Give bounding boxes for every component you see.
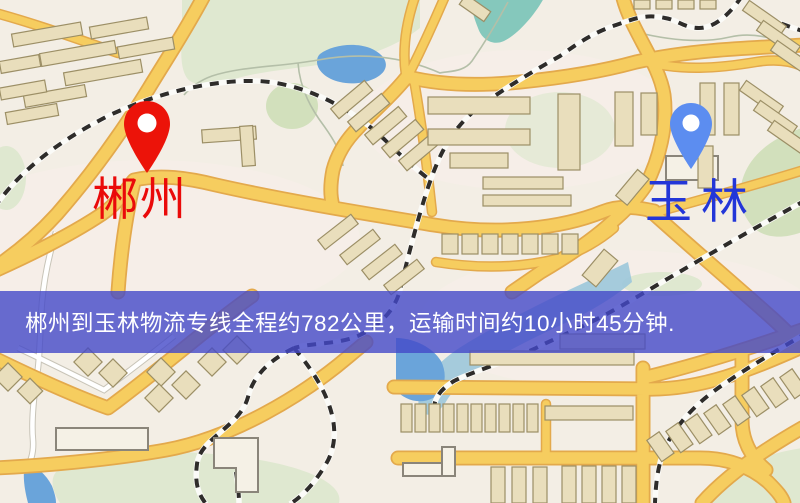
destination-city-label: 玉林 <box>645 180 757 227</box>
route-info-banner: 郴州到玉林物流专线全程约782公里，运输时间约10小时45分钟. <box>0 291 800 353</box>
destination-marker[interactable] <box>666 101 716 176</box>
origin-city-label: 郴州 <box>92 177 188 223</box>
origin-marker[interactable] <box>120 99 174 180</box>
route-info-text: 郴州到玉林物流专线全程约782公里，运输时间约10小时45分钟. <box>25 306 675 338</box>
blue-location-pin-icon <box>666 101 716 171</box>
map-canvas[interactable] <box>0 0 800 503</box>
map-view[interactable]: 郴州 玉林 郴州到玉林物流专线全程约782公里，运输时间约10小时45分钟. <box>0 0 800 503</box>
red-location-pin-icon <box>120 99 174 175</box>
